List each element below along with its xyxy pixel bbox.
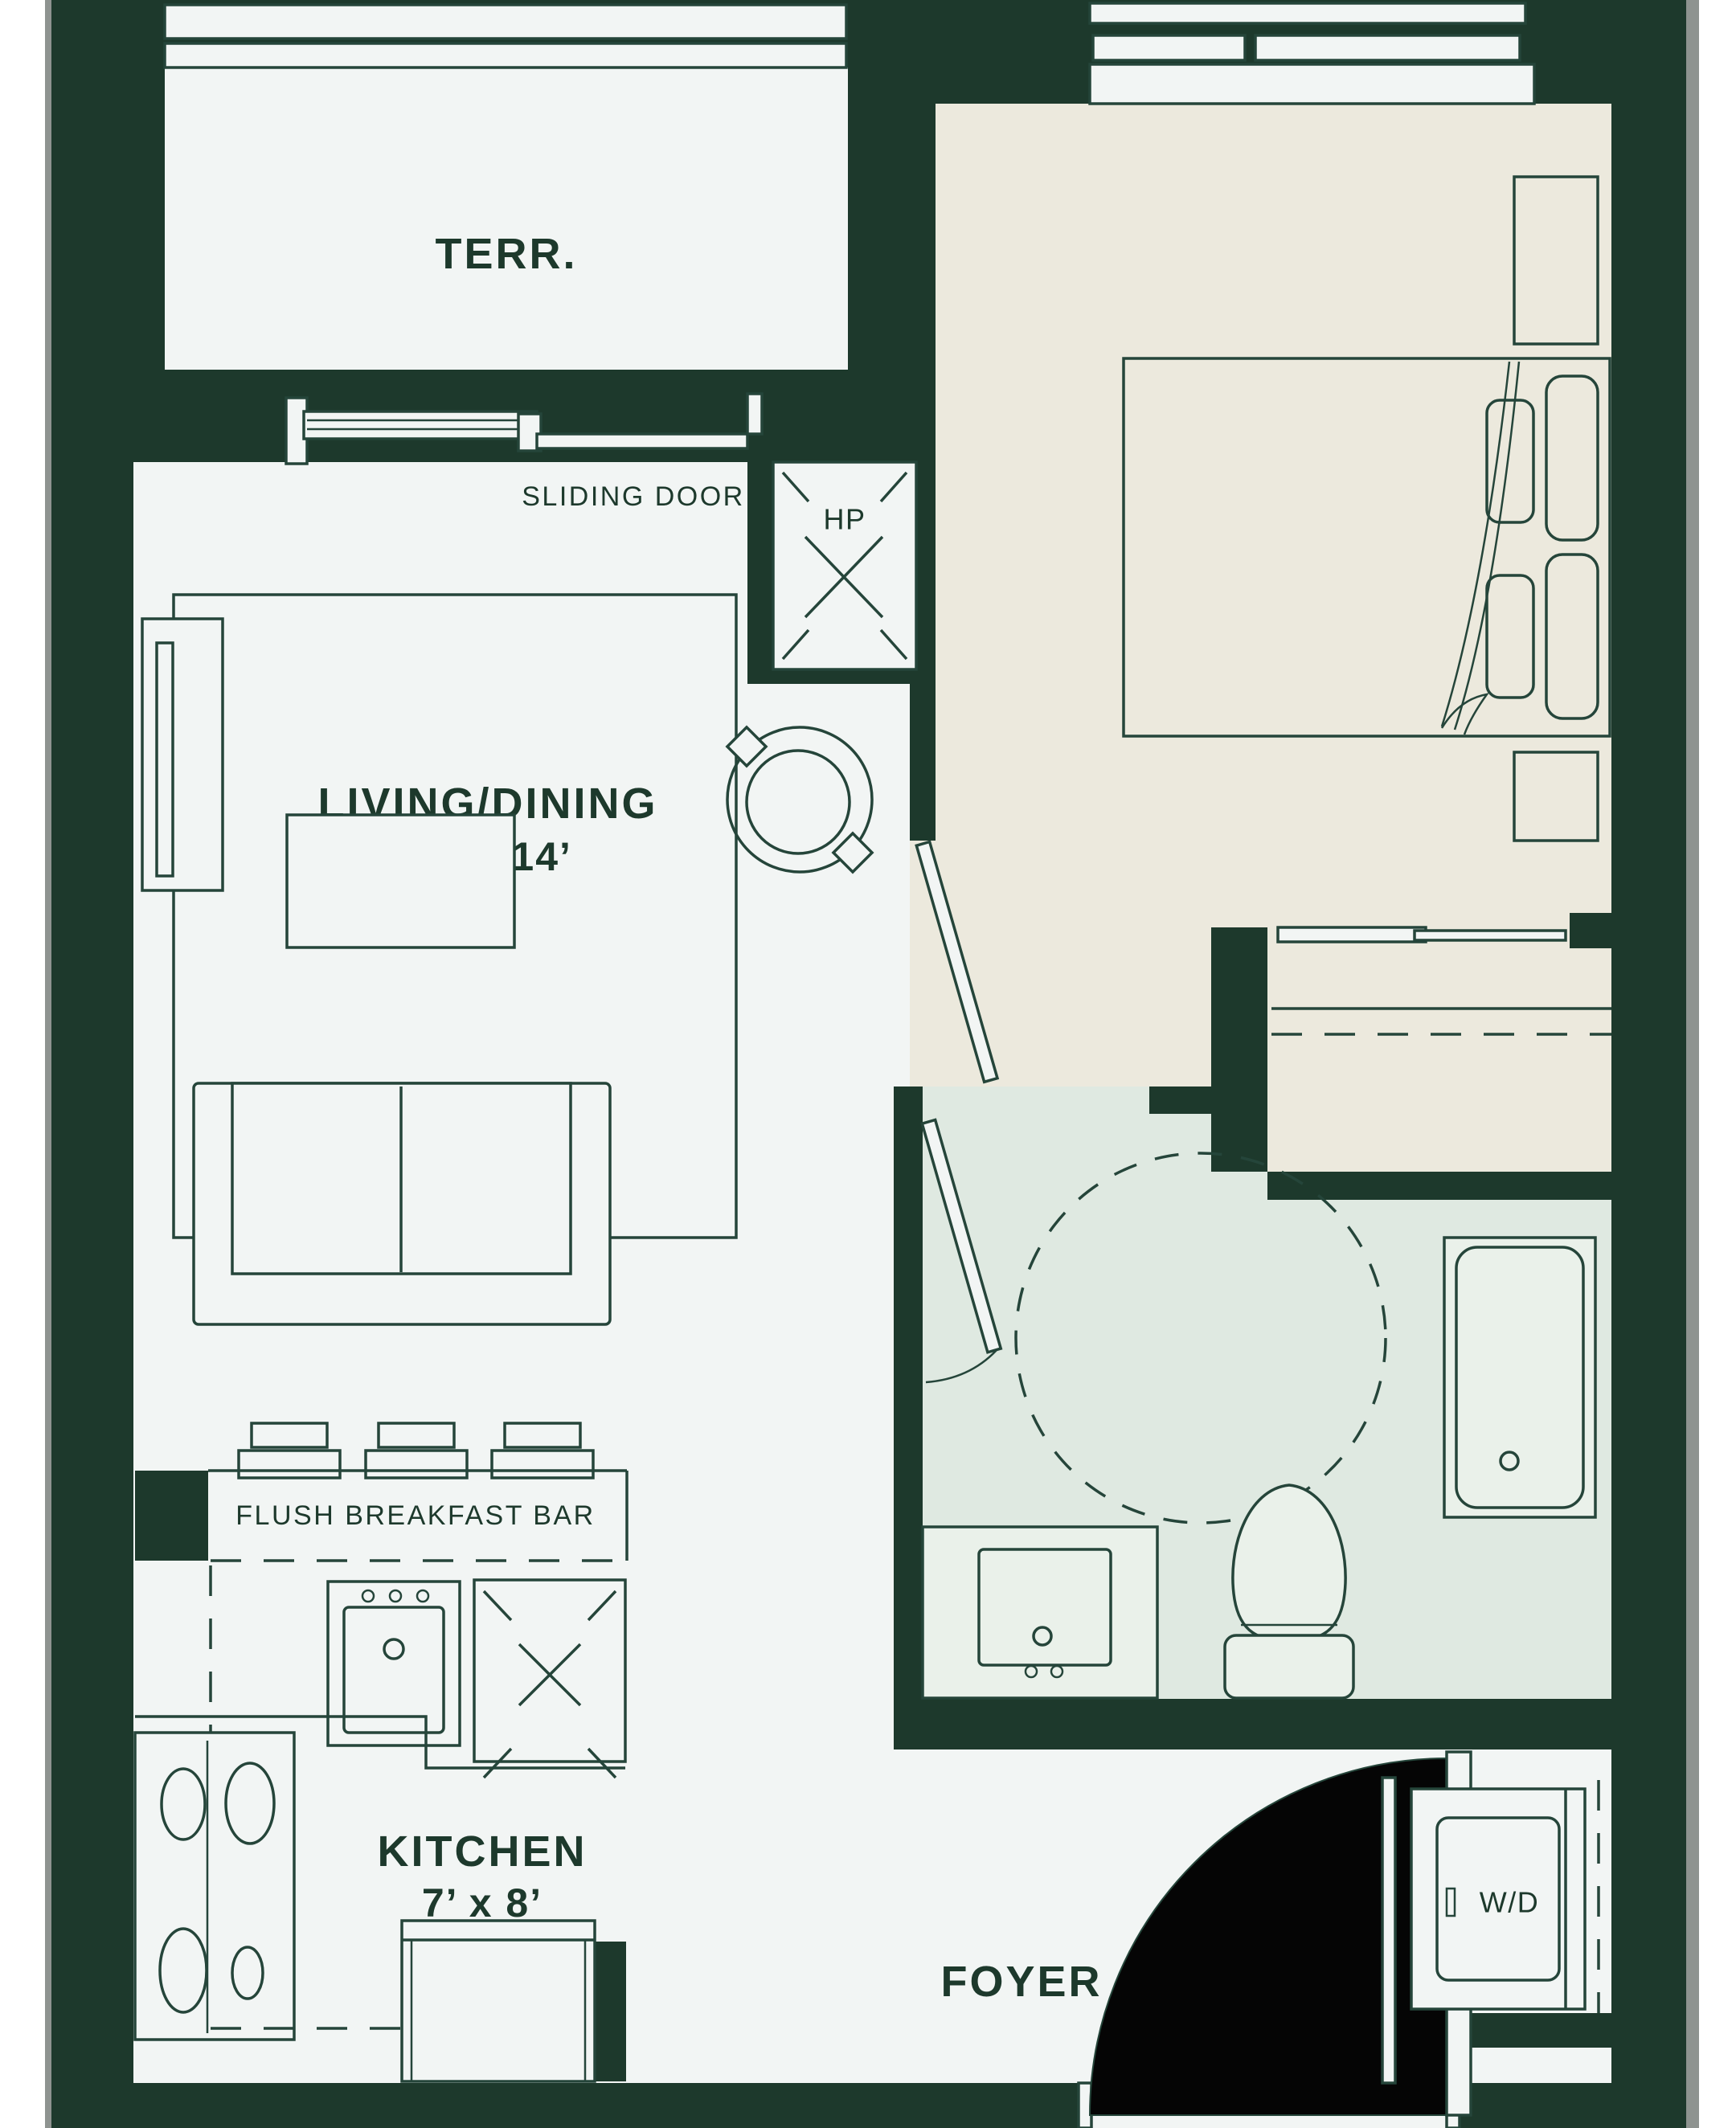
window-pane-right [1255,35,1520,60]
nightstand-bottom [1514,752,1598,841]
terrace-railing-inner [165,43,846,68]
heat-pump-closet: HP [773,462,916,669]
terrace-railing [165,5,846,39]
foyer-partition-wall [1382,1778,1395,2083]
closet-door-panel [1278,927,1426,942]
sliding-door-label: SLIDING DOOR [522,481,744,512]
vanity-sink [923,1527,1157,1698]
terrace-label: TERR. [436,230,578,278]
tv-console [142,619,223,890]
nightstand-top [1514,177,1598,344]
foyer-label: FOYER [940,1958,1102,2006]
window-pane-left [1093,35,1245,60]
sliding-door-panel-front [304,411,537,439]
window-sill [1090,64,1534,104]
heat-pump-label: HP [823,503,866,536]
dishwasher-wall-stub [595,1942,626,2081]
coffee-table [287,815,514,947]
bed-pillow [1546,376,1598,540]
kitchen-wall-stub [135,1471,208,1561]
kitchen-label: KITCHEN [378,1827,588,1876]
bed-cushion [1487,575,1533,698]
bathroom-doorway [923,1087,1149,1114]
washer-dryer-label: W/D [1480,1886,1539,1919]
stove-cooktop [135,1733,294,2040]
refrigerator [474,1580,625,1778]
floor-plan: TERR. LIVING/DINING 10’ x 14’ BEDROOM 9’… [0,0,1736,2128]
closet-door-panel [1415,931,1566,940]
bed [1124,358,1610,736]
sliding-door-jamb-right [747,394,762,434]
dishwasher [402,1921,595,2081]
window-outer-band [1090,3,1525,23]
closet-left-wall [1211,961,1267,1172]
bed-pillow [1546,555,1598,718]
right-edge-shadow [1685,0,1699,2128]
bedroom-windows [1090,3,1534,104]
closet-right-jamb [1570,913,1611,948]
bed-cushion [1487,400,1533,522]
bathtub [1444,1238,1595,1517]
tv [157,643,173,876]
kitchen-dimensions: 7’ x 8’ [422,1880,542,1925]
sofa [194,1083,610,1324]
wd-closet-wall-stub [1464,2013,1611,2048]
breakfast-bar-label: FLUSH BREAKFAST BAR [235,1500,595,1531]
kitchen-sink [328,1582,460,1745]
sliding-door-panel-back [537,434,747,448]
bedroom-closet-floor [1267,927,1611,1172]
terrace: TERR. [165,5,848,370]
